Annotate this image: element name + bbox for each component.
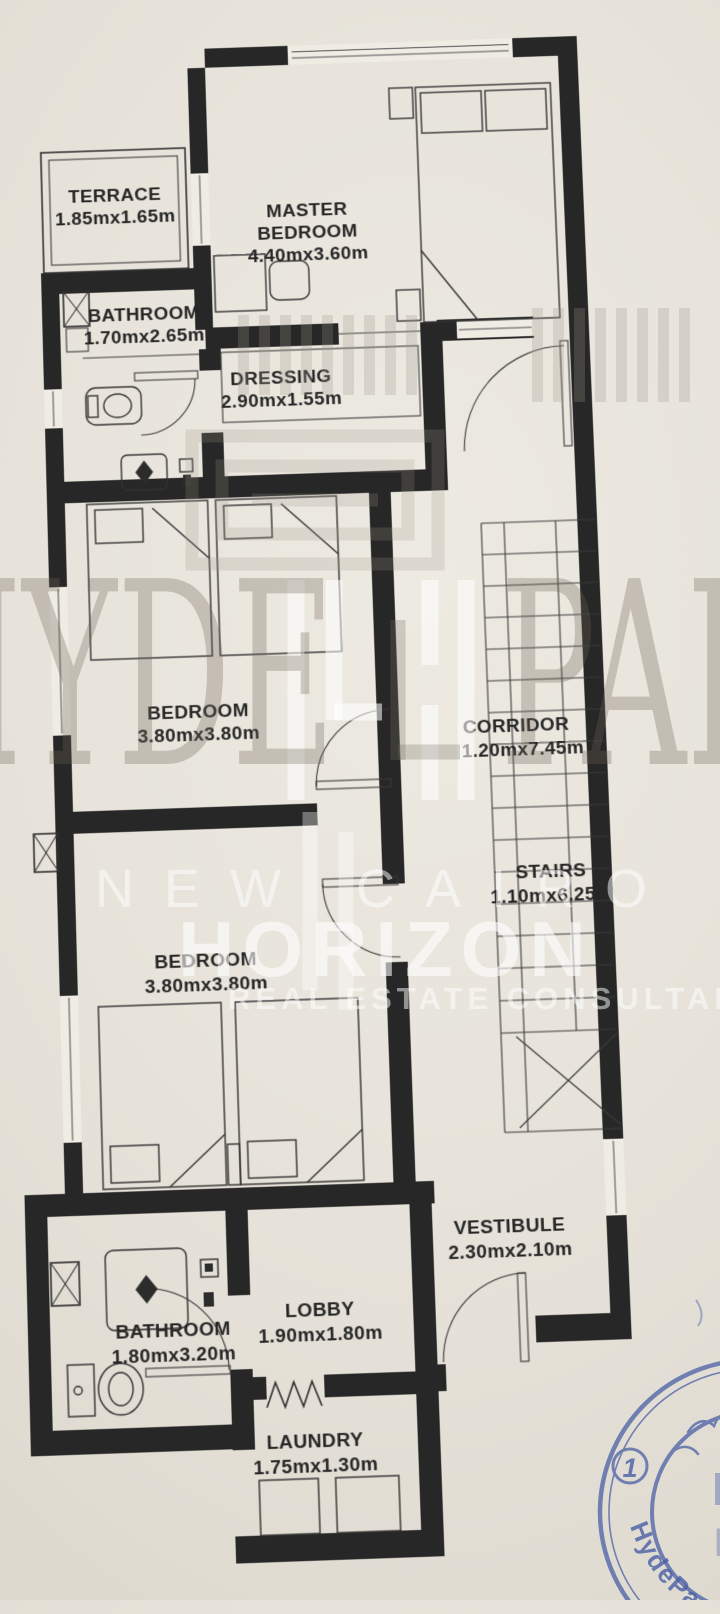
room-terrace-label: TERRACE 1.85mx1.65m (54, 183, 176, 230)
room-dims: 2.90mx1.55m (221, 387, 343, 412)
bed (223, 998, 364, 1185)
room-dims: 1.75mx1.30m (253, 1452, 379, 1478)
room-name: LOBBY (285, 1297, 355, 1321)
watermark-brand-right: PARK (500, 549, 720, 804)
room-vestibule-label: VESTIBULE 2.30mx2.10m (447, 1213, 573, 1264)
watermark-agency: HORIZON (178, 910, 594, 988)
door-swing (134, 371, 199, 436)
room-name: VESTIBULE (453, 1213, 565, 1239)
room-laundry-label: LAUNDRY 1.75mx1.30m (252, 1427, 378, 1478)
room-name: TERRACE (68, 183, 161, 207)
room-dims: 1.80mx3.20m (111, 1341, 236, 1367)
room-lobby-label: LOBBY 1.90mx1.80m (257, 1296, 383, 1347)
room-master-bedroom-label: MASTER BEDROOM 4.40mx3.60m (246, 197, 369, 266)
washer-dryer (259, 1476, 401, 1536)
dressing-boundary (339, 331, 421, 334)
room-dims: 1.90mx1.80m (258, 1321, 383, 1347)
room-dims: 2.30mx2.10m (448, 1237, 573, 1263)
room-bathroom-bottom-label: BATHROOM 1.80mx3.20m (111, 1317, 237, 1368)
room-dims: 1.70mx2.65m (84, 324, 206, 349)
toilet-icon (67, 1363, 144, 1417)
room-dims: 1.85mx1.65m (55, 205, 176, 230)
room-dims: 4.40mx3.60m (248, 242, 369, 267)
room-name: BATHROOM (115, 1317, 231, 1343)
floorplan-photo: { "colors": { "paper": "#e6e2d9", "ink":… (0, 0, 720, 1600)
room-name: MASTER (266, 198, 348, 221)
door-swing (440, 1273, 529, 1364)
duct-shaft-icon (51, 1262, 81, 1306)
bed (389, 83, 560, 323)
room-name: DRESSING (230, 365, 332, 389)
bathroom-partition (83, 354, 199, 358)
room-name: BATHROOM (87, 302, 200, 326)
door-swing (460, 341, 572, 452)
toilet-icon (85, 386, 141, 425)
watermark-brand-left: HYDE (0, 549, 336, 804)
watermark-tagline: REAL ESTATE CONSULTANCY (228, 983, 720, 1014)
duct-shaft-icon (34, 833, 59, 872)
bed (98, 1003, 226, 1190)
room-bathroom-top-label: BATHROOM 1.70mx2.65m (83, 301, 205, 348)
room-name: BEDROOM (257, 220, 358, 244)
room-dressing-label: DRESSING 2.90mx1.55m (220, 365, 343, 412)
zigzag-symbol (266, 1381, 322, 1408)
room-name: LAUNDRY (266, 1428, 363, 1453)
